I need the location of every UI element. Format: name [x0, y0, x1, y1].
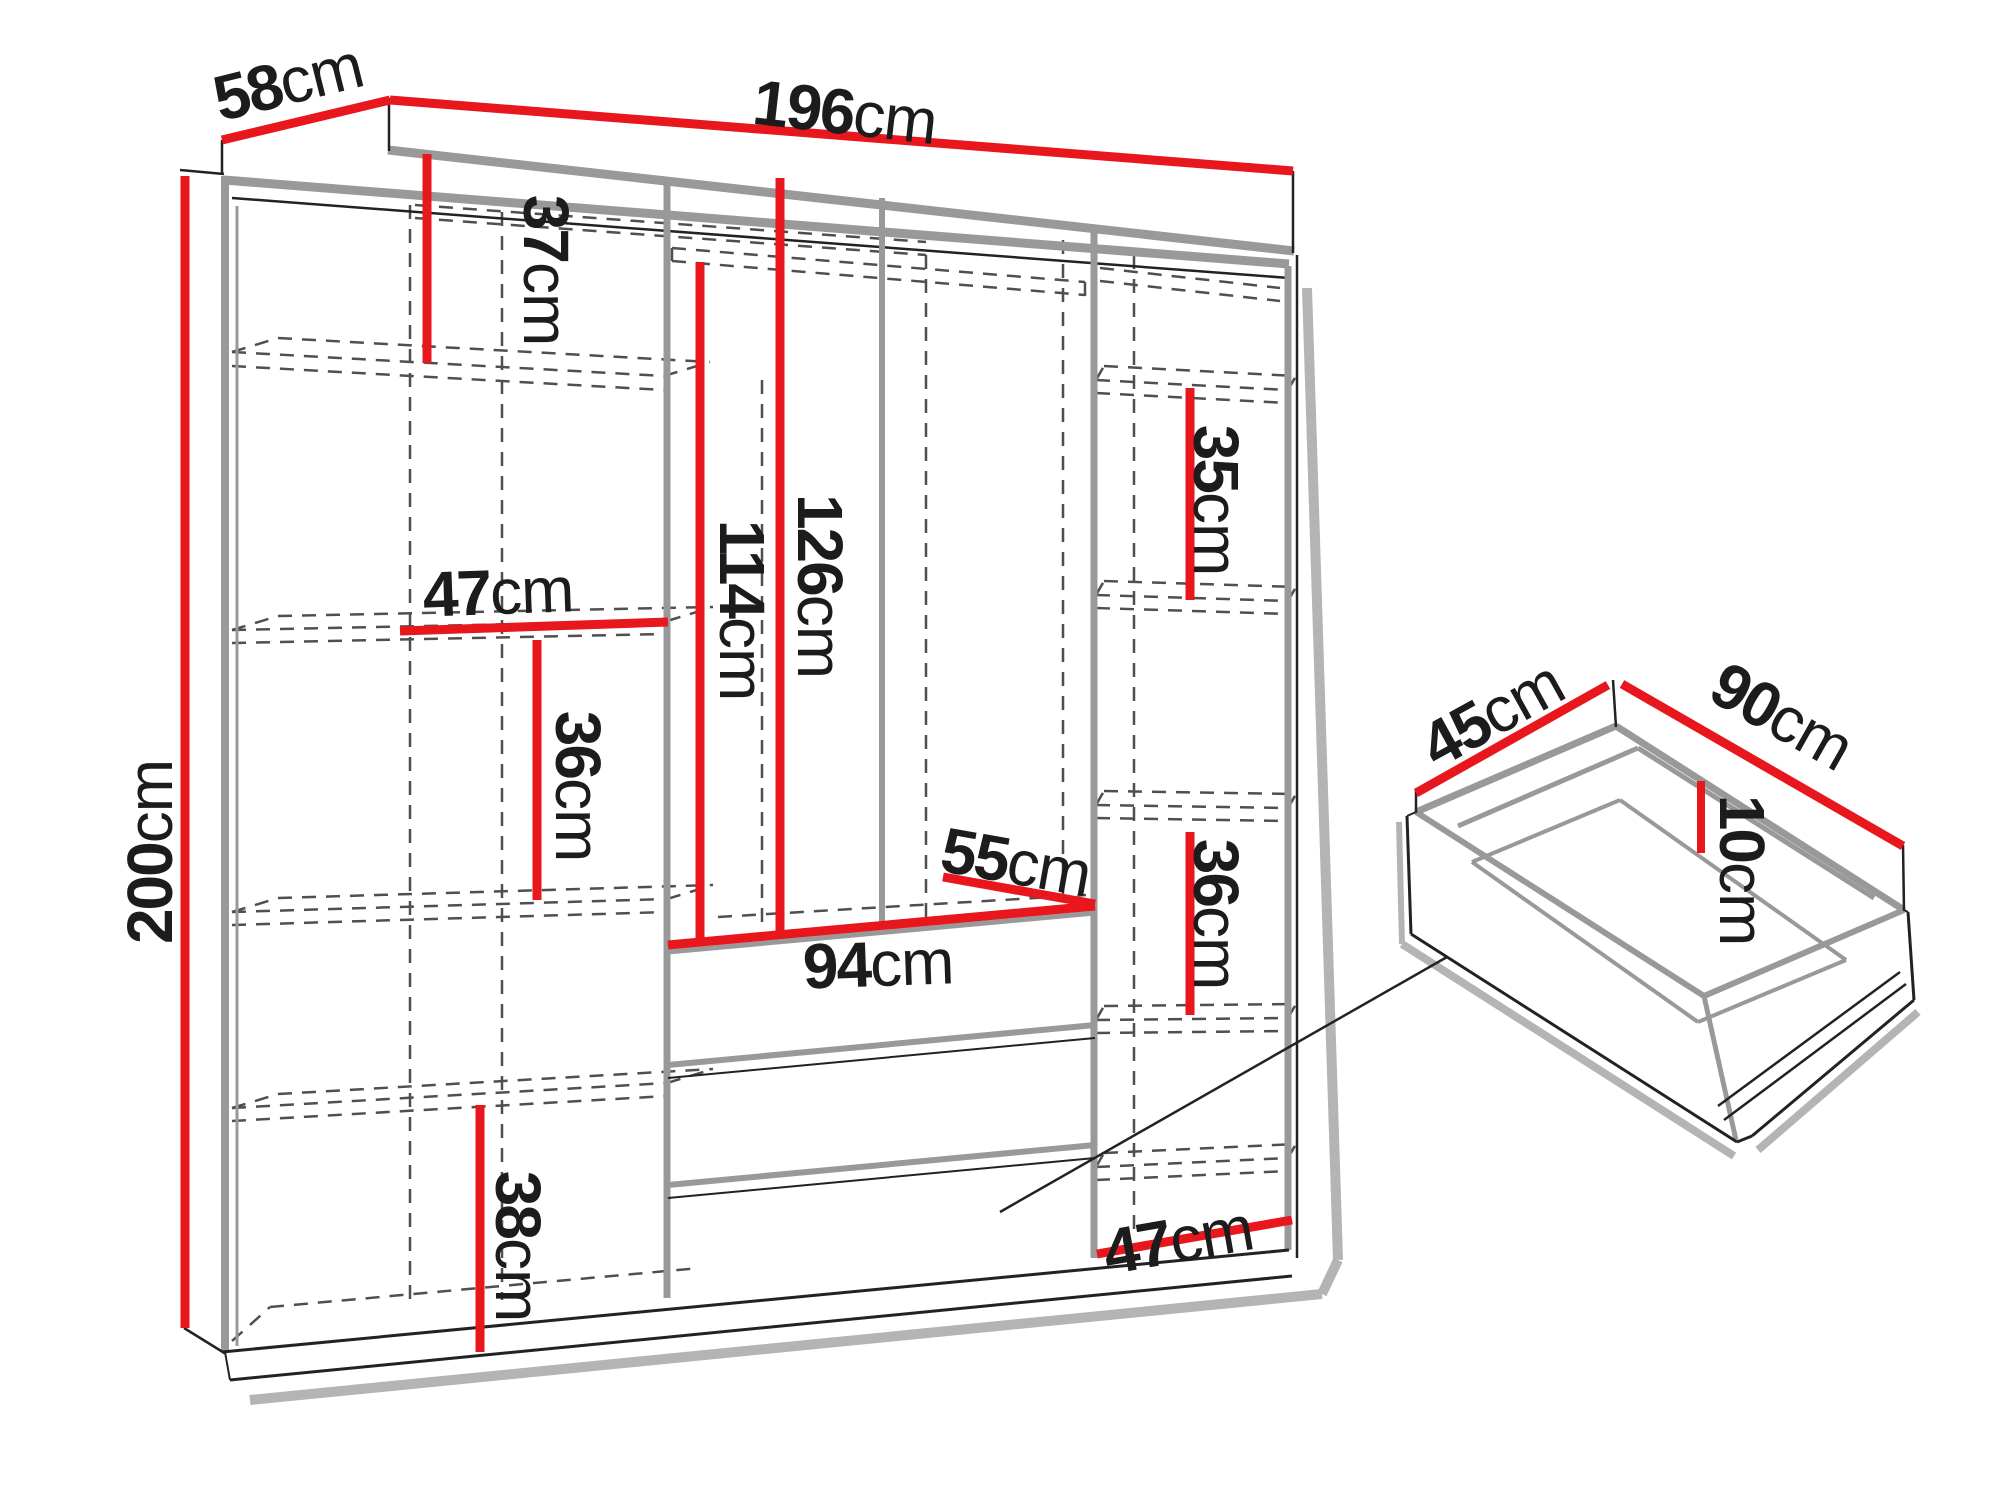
dim-value: 200	[114, 843, 186, 944]
dim-value: 38	[482, 1171, 554, 1238]
dim-unit: cm	[489, 553, 575, 628]
dim-label-mid-114cm: 114cm	[710, 520, 774, 701]
dim-value: 94	[802, 928, 872, 1002]
dim-unit: cm	[482, 1238, 554, 1321]
dim-unit: cm	[850, 77, 941, 158]
wardrobe-frame	[180, 98, 1297, 1380]
dim-unit: cm	[1706, 862, 1778, 945]
dim-label-left-38cm: 38cm	[486, 1171, 550, 1322]
dim-label-right-35cm: 35cm	[1184, 425, 1248, 576]
dim-unit: cm	[542, 778, 614, 861]
dim-value: 36	[1180, 839, 1252, 906]
dim-unit: cm	[784, 595, 856, 678]
dim-value: 36	[542, 711, 614, 778]
dim-label-mid-94cm: 94cm	[802, 929, 955, 998]
dim-value: 196	[749, 66, 857, 149]
dim-label-left-47cm: 47cm	[422, 557, 575, 626]
dimension-lines	[185, 100, 1903, 1352]
dim-unit: cm	[510, 262, 582, 345]
dim-label-mid-126cm: 126cm	[788, 494, 852, 678]
dim-label-drawer-10cm: 10cm	[1710, 795, 1774, 946]
dim-unit: cm	[1002, 825, 1097, 910]
dim-label-left-37cm: 37cm	[514, 195, 578, 346]
dim-value: 114	[706, 520, 778, 617]
dim-value: 55	[936, 813, 1015, 896]
dim-unit: cm	[1180, 906, 1252, 989]
dim-unit: cm	[114, 760, 186, 843]
diagram-canvas: 196cm58cm200cm37cm47cm36cm38cm114cm126cm…	[0, 0, 2000, 1500]
dim-value: 47	[422, 556, 492, 630]
dim-value: 126	[784, 494, 856, 595]
dim-unit: cm	[1164, 1191, 1259, 1276]
dim-unit: cm	[1180, 492, 1252, 575]
dim-label-right-36cm: 36cm	[1184, 839, 1248, 990]
dim-unit: cm	[706, 617, 778, 700]
dim-value: 47	[1098, 1206, 1177, 1289]
dim-value: 37	[510, 195, 582, 262]
wardrobe-drawing	[0, 0, 2000, 1500]
dim-value: 10	[1706, 795, 1778, 862]
dim-value: 35	[1180, 425, 1252, 492]
dim-label-left-36cm: 36cm	[546, 711, 610, 862]
interior-dashed-lines	[232, 205, 1296, 1341]
dim-unit: cm	[869, 925, 955, 1000]
dim-label-height-200cm: 200cm	[118, 760, 182, 944]
